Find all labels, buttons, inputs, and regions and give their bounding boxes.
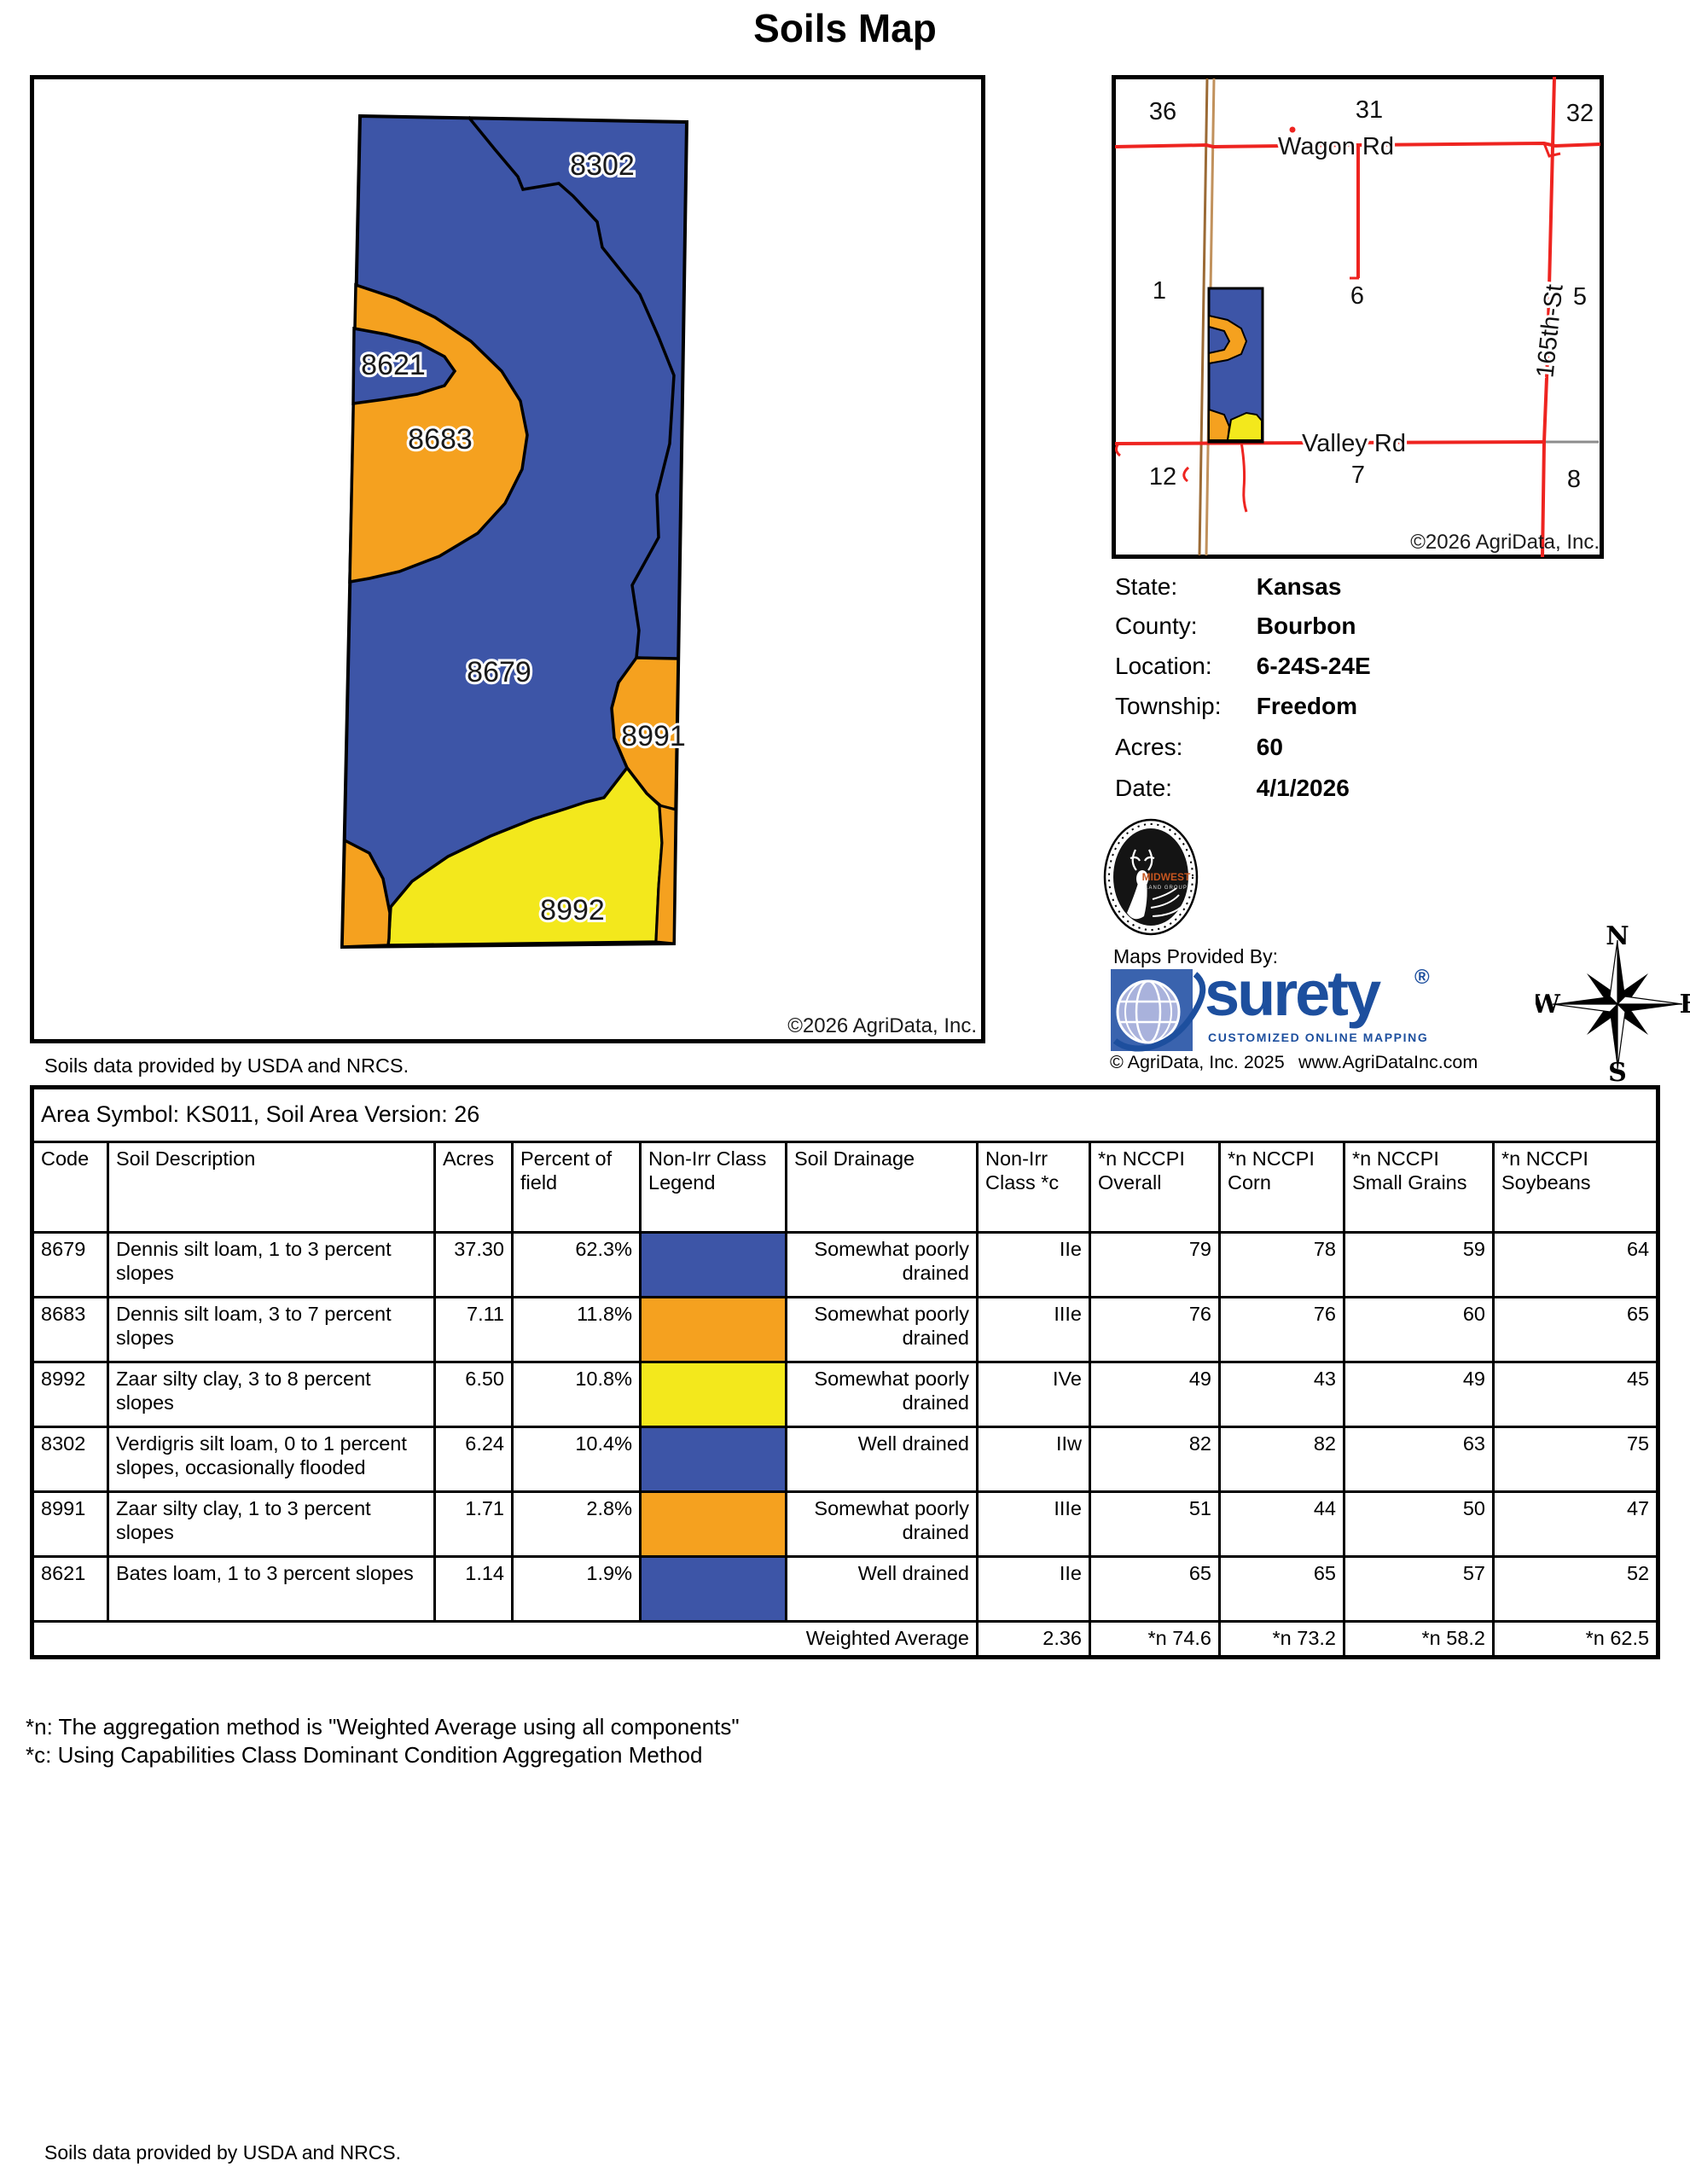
- cell-nonirr-class: IVe: [978, 1362, 1090, 1427]
- cell-drainage: Somewhat poorly drained: [787, 1298, 978, 1362]
- compass-south-label: S: [1608, 1058, 1627, 1083]
- cell-drainage: Somewhat poorly drained: [787, 1492, 978, 1557]
- weighted-nccpi-soybeans: *n 62.5: [1494, 1622, 1658, 1658]
- column-header-5: Soil Drainage: [787, 1142, 978, 1233]
- section-7: 7: [1351, 462, 1365, 489]
- cell-description: Zaar silty clay, 3 to 8 percent slopes: [108, 1362, 435, 1427]
- cell-nccpi-corn: 43: [1220, 1362, 1344, 1427]
- weighted-nccpi-corn: *n 73.2: [1220, 1622, 1344, 1658]
- cell-nccpi-overall: 82: [1090, 1427, 1220, 1492]
- cell-percent: 2.8%: [513, 1492, 641, 1557]
- agridata-website: www.AgriDataInc.com: [1298, 1052, 1478, 1073]
- footnote-n: *n: The aggregation method is "Weighted …: [26, 1713, 740, 1741]
- cell-acres: 37.30: [435, 1233, 513, 1298]
- section-12: 12: [1149, 463, 1176, 491]
- legend-swatch: [641, 1233, 787, 1298]
- soil-label-8683: 8683: [408, 423, 473, 456]
- cell-nccpi-corn: 78: [1220, 1233, 1344, 1298]
- cell-nccpi-soybeans: 47: [1494, 1492, 1658, 1557]
- column-header-1: Soil Description: [108, 1142, 435, 1233]
- cell-description: Verdigris silt loam, 0 to 1 percent slop…: [108, 1427, 435, 1492]
- soil-map-canvas: 8302 8621 8683 8679 8991 8992 ©2026 Agri…: [30, 75, 985, 1043]
- table-row: 8621Bates loam, 1 to 3 percent slopes1.1…: [32, 1557, 1658, 1622]
- cell-nccpi-overall: 79: [1090, 1233, 1220, 1298]
- section-5: 5: [1573, 283, 1587, 311]
- cell-description: Bates loam, 1 to 3 percent slopes: [108, 1557, 435, 1622]
- column-header-10: *n NCCPI Soybeans: [1494, 1142, 1658, 1233]
- cell-drainage: Well drained: [787, 1427, 978, 1492]
- cell-code: 8991: [32, 1492, 108, 1557]
- info-label: Township:: [1115, 692, 1250, 721]
- cell-nonirr-class: IIIe: [978, 1492, 1090, 1557]
- page-title: Soils Map: [0, 5, 1690, 51]
- column-header-3: Percent of field: [513, 1142, 641, 1233]
- cell-acres: 1.71: [435, 1492, 513, 1557]
- soils-table: Area Symbol: KS011, Soil Area Version: 2…: [30, 1085, 1660, 1659]
- weighted-average-row: Weighted Average 2.36 *n 74.6 *n 73.2 *n…: [32, 1622, 1658, 1658]
- cell-nccpi-small-grains: 50: [1344, 1492, 1494, 1557]
- info-value: Kansas: [1257, 573, 1342, 600]
- surety-wordmark: surety: [1205, 962, 1379, 1025]
- info-row-acres: Acres: 60: [1115, 733, 1283, 762]
- soil-label-8679: 8679: [467, 656, 531, 688]
- column-header-7: *n NCCPI Overall: [1090, 1142, 1220, 1233]
- column-header-4: Non-Irr Class Legend: [641, 1142, 787, 1233]
- info-label: Date:: [1115, 774, 1250, 803]
- info-row-state: State: Kansas: [1115, 572, 1341, 601]
- midwest-logo-title: MIDWEST: [1142, 871, 1191, 883]
- cell-description: Zaar silty clay, 1 to 3 percent slopes: [108, 1492, 435, 1557]
- legend-swatch: [641, 1427, 787, 1492]
- cell-nccpi-overall: 65: [1090, 1557, 1220, 1622]
- road-dot: [1290, 127, 1296, 133]
- section-36: 36: [1149, 98, 1176, 125]
- column-header-9: *n NCCPI Small Grains: [1344, 1142, 1494, 1233]
- cell-acres: 1.14: [435, 1557, 513, 1622]
- cell-nccpi-corn: 82: [1220, 1427, 1344, 1492]
- info-value: Freedom: [1257, 693, 1357, 719]
- info-label: Location:: [1115, 652, 1250, 681]
- midwest-logo-canvas: MIDWEST LAND GROUP: [1103, 817, 1199, 937]
- legend-swatch: [641, 1492, 787, 1557]
- cell-acres: 6.24: [435, 1427, 513, 1492]
- compass-canvas: N W E S: [1536, 926, 1690, 1083]
- section-8: 8: [1567, 466, 1581, 493]
- cell-nccpi-small-grains: 57: [1344, 1557, 1494, 1622]
- info-label: Acres:: [1115, 733, 1250, 762]
- soils-map-report-page: Soils Map 8302 8621 8683 8679 89: [0, 0, 1690, 2184]
- weighted-nonirr-class: 2.36: [978, 1622, 1090, 1658]
- weighted-average-label: Weighted Average: [32, 1622, 978, 1658]
- cell-drainage: Well drained: [787, 1557, 978, 1622]
- soils-table-wrapper: Area Symbol: KS011, Soil Area Version: 2…: [30, 1085, 1660, 1659]
- agridata-copyright: © AgriData, Inc. 2025: [1110, 1052, 1285, 1073]
- cell-nccpi-soybeans: 65: [1494, 1298, 1658, 1362]
- cell-nccpi-small-grains: 63: [1344, 1427, 1494, 1492]
- soil-label-8992: 8992: [540, 894, 605, 926]
- table-row: 8992Zaar silty clay, 3 to 8 percent slop…: [32, 1362, 1658, 1427]
- surety-tagline: CUSTOMIZED ONLINE MAPPING: [1208, 1031, 1428, 1044]
- cell-percent: 10.8%: [513, 1362, 641, 1427]
- cell-nonirr-class: IIw: [978, 1427, 1090, 1492]
- cell-nonirr-class: IIe: [978, 1557, 1090, 1622]
- cell-nccpi-soybeans: 45: [1494, 1362, 1658, 1427]
- column-header-8: *n NCCPI Corn: [1220, 1142, 1344, 1233]
- cell-code: 8679: [32, 1233, 108, 1298]
- column-header-row: CodeSoil DescriptionAcresPercent of fiel…: [32, 1142, 1658, 1233]
- info-value: 6-24S-24E: [1257, 653, 1371, 679]
- cell-description: Dennis silt loam, 3 to 7 percent slopes: [108, 1298, 435, 1362]
- column-header-2: Acres: [435, 1142, 513, 1233]
- locator-map: 36 31 32 1 6 5 12 7 8 Wagon Rd Valley Rd…: [1112, 75, 1604, 563]
- cell-nccpi-corn: 76: [1220, 1298, 1344, 1362]
- section-32: 32: [1566, 100, 1594, 127]
- cell-nccpi-corn: 65: [1220, 1557, 1344, 1622]
- footnotes: *n: The aggregation method is "Weighted …: [26, 1713, 740, 1769]
- cell-percent: 11.8%: [513, 1298, 641, 1362]
- valley-rd-label: Valley Rd: [1302, 430, 1406, 457]
- cell-nonirr-class: IIe: [978, 1233, 1090, 1298]
- soil-label-8621: 8621: [361, 349, 426, 381]
- soil-map-source-note: Soils data provided by USDA and NRCS.: [44, 1054, 409, 1077]
- legend-swatch: [641, 1362, 787, 1427]
- table-row: 8683Dennis silt loam, 3 to 7 percent slo…: [32, 1298, 1658, 1362]
- column-header-6: Non-Irr Class *c: [978, 1142, 1090, 1233]
- info-label: State:: [1115, 572, 1250, 601]
- cell-nccpi-corn: 44: [1220, 1492, 1344, 1557]
- compass-north-label: N: [1606, 926, 1629, 951]
- table-row: 8991Zaar silty clay, 1 to 3 percent slop…: [32, 1492, 1658, 1557]
- cell-nccpi-overall: 76: [1090, 1298, 1220, 1362]
- cell-acres: 7.11: [435, 1298, 513, 1362]
- legend-swatch: [641, 1557, 787, 1622]
- info-label: County:: [1115, 612, 1250, 641]
- weighted-nccpi-small-grains: *n 58.2: [1344, 1622, 1494, 1658]
- info-row-county: County: Bourbon: [1115, 612, 1356, 641]
- info-row-date: Date: 4/1/2026: [1115, 774, 1350, 803]
- column-header-0: Code: [32, 1142, 108, 1233]
- cell-percent: 62.3%: [513, 1233, 641, 1298]
- table-row: 8302Verdigris silt loam, 0 to 1 percent …: [32, 1427, 1658, 1492]
- table-row: 8679Dennis silt loam, 1 to 3 percent slo…: [32, 1233, 1658, 1298]
- cell-nccpi-soybeans: 52: [1494, 1557, 1658, 1622]
- soil-map: 8302 8621 8683 8679 8991 8992 ©2026 Agri…: [30, 75, 985, 1048]
- footnote-c: *c: Using Capabilities Class Dominant Co…: [26, 1741, 740, 1769]
- info-value: 60: [1257, 734, 1283, 760]
- info-row-township: Township: Freedom: [1115, 692, 1357, 721]
- cell-nccpi-small-grains: 49: [1344, 1362, 1494, 1427]
- cell-acres: 6.50: [435, 1362, 513, 1427]
- footer-source-note: Soils data provided by USDA and NRCS.: [44, 2141, 401, 2164]
- cell-nccpi-soybeans: 64: [1494, 1233, 1658, 1298]
- weighted-nccpi-overall: *n 74.6: [1090, 1622, 1220, 1658]
- midwest-land-group-logo: MIDWEST LAND GROUP: [1103, 817, 1199, 941]
- compass-west-label: W: [1536, 990, 1561, 1019]
- cell-code: 8621: [32, 1557, 108, 1622]
- midwest-logo-subtitle: LAND GROUP: [1145, 886, 1188, 891]
- legend-swatch: [641, 1298, 787, 1362]
- compass-star: [1553, 940, 1682, 1069]
- area-symbol-row: Area Symbol: KS011, Soil Area Version: 2…: [32, 1088, 1658, 1142]
- info-value: Bourbon: [1257, 613, 1356, 639]
- cell-nccpi-overall: 49: [1090, 1362, 1220, 1427]
- wagon-rd-label: Wagon Rd: [1278, 133, 1394, 160]
- locator-map-canvas: 36 31 32 1 6 5 12 7 8 Wagon Rd Valley Rd…: [1112, 75, 1604, 559]
- info-value: 4/1/2026: [1257, 775, 1350, 801]
- section-1: 1: [1153, 277, 1166, 305]
- compass-east-label: E: [1680, 990, 1690, 1019]
- cell-nccpi-small-grains: 59: [1344, 1233, 1494, 1298]
- compass-rose-icon: N W E S: [1536, 926, 1690, 1088]
- cell-drainage: Somewhat poorly drained: [787, 1233, 978, 1298]
- registered-mark-icon: ®: [1414, 966, 1430, 990]
- info-row-location: Location: 6-24S-24E: [1115, 652, 1371, 681]
- locator-copyright: ©2026 AgriData, Inc.: [1410, 531, 1600, 554]
- area-symbol-line: Area Symbol: KS011, Soil Area Version: 2…: [32, 1088, 1658, 1142]
- cell-drainage: Somewhat poorly drained: [787, 1362, 978, 1427]
- soil-map-copyright: ©2026 AgriData, Inc.: [787, 1014, 977, 1037]
- cell-description: Dennis silt loam, 1 to 3 percent slopes: [108, 1233, 435, 1298]
- cell-nonirr-class: IIIe: [978, 1298, 1090, 1362]
- cell-code: 8992: [32, 1362, 108, 1427]
- cell-nccpi-small-grains: 60: [1344, 1298, 1494, 1362]
- cell-code: 8683: [32, 1298, 108, 1362]
- section-6: 6: [1350, 282, 1364, 310]
- cell-nccpi-soybeans: 75: [1494, 1427, 1658, 1492]
- soil-table-body: 8679Dennis silt loam, 1 to 3 percent slo…: [32, 1233, 1658, 1622]
- soil-label-8302: 8302: [570, 149, 635, 182]
- cell-code: 8302: [32, 1427, 108, 1492]
- cell-percent: 1.9%: [513, 1557, 641, 1622]
- section-31: 31: [1356, 96, 1383, 124]
- cell-nccpi-overall: 51: [1090, 1492, 1220, 1557]
- soil-label-8991: 8991: [621, 720, 686, 752]
- cell-percent: 10.4%: [513, 1427, 641, 1492]
